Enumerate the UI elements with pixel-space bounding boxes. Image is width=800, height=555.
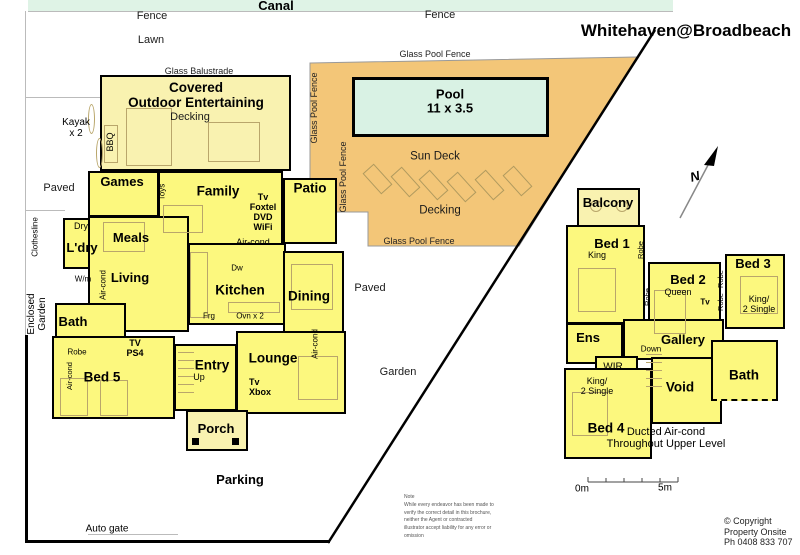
stairs-up xyxy=(178,352,194,396)
wir-label: WIR xyxy=(603,362,622,373)
meals-label: Meals xyxy=(113,231,149,245)
laundry-label: L'dry xyxy=(66,241,97,255)
bed3-size-label: King/ 2 Single xyxy=(743,295,776,315)
void-label: Void xyxy=(666,381,694,396)
page-title: Whitehaven@Broadbeach xyxy=(581,21,791,41)
bed1-label: Bed 1 xyxy=(594,237,629,251)
bed2-label: Bed 2 xyxy=(670,273,705,287)
outdoor-sofa xyxy=(208,122,260,162)
aircond-label-lounge: Air-cond xyxy=(312,329,321,359)
aircond-label-family: Air-cond xyxy=(236,238,270,248)
canal-label: Canal xyxy=(258,0,293,13)
aircond-label-living: Air-cond xyxy=(100,270,109,300)
north-arrow-head xyxy=(704,146,718,166)
bath-ground-label: Bath xyxy=(59,315,88,329)
toys-label: Toys xyxy=(159,184,168,200)
porch-post-2 xyxy=(232,438,239,445)
pool-label: Pool 11 x 3.5 xyxy=(427,88,473,117)
bed3-label: Bed 3 xyxy=(735,257,770,271)
patio-label: Patio xyxy=(293,182,326,197)
robe-label-bed1: Robe xyxy=(637,241,645,259)
deck-decking-label: Decking xyxy=(419,205,461,218)
stairs-down xyxy=(646,354,662,394)
lawn-label: Lawn xyxy=(138,34,164,46)
bed5-label: Bed 5 xyxy=(84,371,121,386)
family-sofa xyxy=(163,205,203,233)
floor-plan: Whitehaven@Broadbeach Canal Fence Fence … xyxy=(0,0,800,555)
decking-label: Decking xyxy=(170,111,210,123)
tv-label-bed2: Tv xyxy=(700,299,709,308)
fence-label-right: Fence xyxy=(425,9,456,21)
robe-label-bed3-2: Robe xyxy=(717,293,725,311)
enclosed-garden-label: Enclosed Garden xyxy=(26,293,48,334)
games-label: Games xyxy=(100,175,143,189)
dw-label: Dw xyxy=(231,265,243,274)
robe-label-bed3-1: Robe xyxy=(717,270,725,288)
outdoor-table xyxy=(126,108,172,166)
down-label: Down xyxy=(641,346,661,355)
bed4-size-label: King/ 2 Single xyxy=(581,377,614,397)
family-tech-label: Tv Foxtel DVD WiFi xyxy=(250,193,277,233)
covered-outdoor-label: Covered Outdoor Entertaining xyxy=(128,81,264,111)
glass-pool-fence-label-v2: Glass Pool Fence xyxy=(339,141,349,212)
garden-label: Garden xyxy=(380,366,417,378)
paved-label-right: Paved xyxy=(354,282,385,294)
paved-label-left: Paved xyxy=(43,182,74,194)
ensuite-label: Ens xyxy=(576,331,600,345)
property-boundary-bottom xyxy=(25,540,330,543)
fence-label-left: Fence xyxy=(137,10,168,22)
glass-pool-fence-label-top: Glass Pool Fence xyxy=(399,50,470,60)
frg-label: Frg xyxy=(203,313,215,322)
kayak-label: Kayak x 2 xyxy=(62,117,90,139)
robe-label-bed2: Robe xyxy=(644,288,652,306)
auto-gate-label: Auto gate xyxy=(86,524,129,535)
aircond-label-bed5: Air-cond xyxy=(66,362,74,390)
clothesline-label: Clothesline xyxy=(32,217,41,257)
balcony-label: Balcony xyxy=(583,196,634,210)
dining-label: Dining xyxy=(288,290,330,305)
tv-ps4-label: TV PS4 xyxy=(126,339,143,359)
living-label: Living xyxy=(111,271,149,285)
robe-ground-label: Robe xyxy=(67,349,86,358)
tv-xbox-label: Tv Xbox xyxy=(249,378,271,398)
family-label: Family xyxy=(197,185,240,200)
copyright-block: © Copyright Property Onsite Ph 0408 833 … xyxy=(724,516,793,548)
king-label: King xyxy=(588,251,606,261)
porch-post xyxy=(192,438,199,445)
porch-label: Porch xyxy=(198,422,235,436)
ducted-aircond-note: Ducted Air-cond Throughout Upper Level xyxy=(607,426,726,450)
glass-balustrade-label: Glass Balustrade xyxy=(165,67,234,77)
up-label: Up xyxy=(193,373,205,383)
dry-label: Dry xyxy=(74,222,88,232)
property-boundary-left xyxy=(25,335,28,543)
scale-0m-label: 0m xyxy=(575,484,589,495)
lounge-label: Lounge xyxy=(249,352,298,367)
kayak-shape-2 xyxy=(96,138,103,168)
kitchen-bench xyxy=(190,252,208,318)
sun-deck-label: Sun Deck xyxy=(410,151,460,164)
glass-pool-fence-label-bottom: Glass Pool Fence xyxy=(383,237,454,247)
gallery-label: Gallery xyxy=(661,333,705,347)
queen-label: Queen xyxy=(664,288,691,298)
bath-upper-label: Bath xyxy=(729,369,759,384)
bbq-label: BBQ xyxy=(106,132,116,151)
glass-pool-fence-label-v1: Glass Pool Fence xyxy=(310,72,320,143)
kitchen-label: Kitchen xyxy=(215,284,265,299)
wm-label: W/m xyxy=(75,276,91,285)
ovn-label: Ovn x 2 xyxy=(236,313,264,322)
bed1-bed xyxy=(578,268,616,312)
parking-label: Parking xyxy=(216,473,264,487)
lounge-sofa xyxy=(298,356,338,400)
scale-5m-label: 5m xyxy=(658,483,672,494)
disclaimer-note: Note While every endeavor has been made … xyxy=(404,494,524,541)
